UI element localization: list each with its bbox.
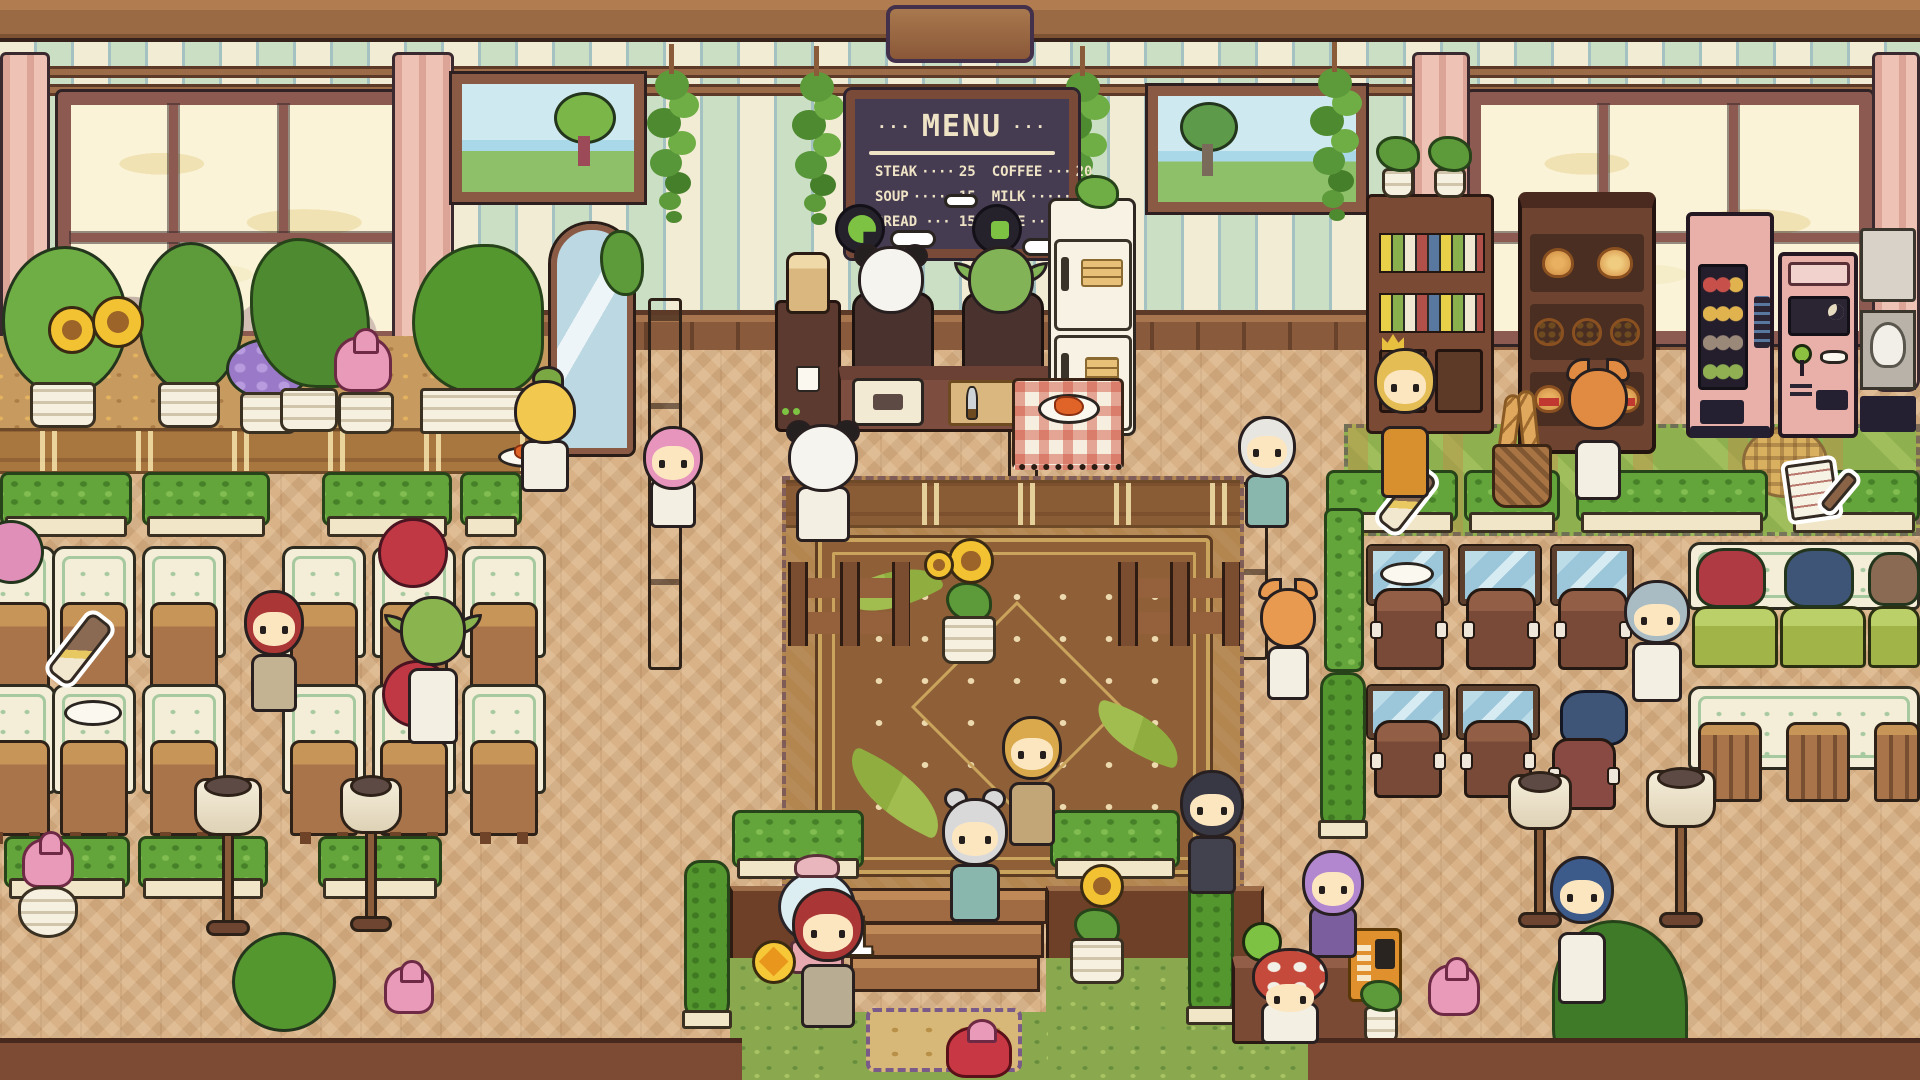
npc-face	[1190, 794, 1234, 826]
tulip-in-pot	[22, 838, 74, 888]
menu-item-dots: ···	[1046, 164, 1071, 180]
sunflower-planter	[1058, 868, 1138, 988]
painting-right	[1148, 86, 1366, 212]
plant-pot	[338, 392, 394, 434]
cookie-shelf	[1530, 304, 1644, 360]
machine-vents	[1790, 384, 1812, 396]
prize-machine-top	[1860, 228, 1916, 302]
lamp-pole	[1534, 826, 1546, 916]
lamp-shade	[340, 778, 402, 834]
bread-icon	[1597, 247, 1633, 279]
pastry-icon	[1534, 385, 1564, 413]
cooking-status-icon	[848, 215, 876, 243]
bread-shelf	[1530, 234, 1644, 292]
cookie-icon	[1572, 318, 1602, 346]
machine-header	[1788, 262, 1850, 286]
soup-bowl	[64, 700, 122, 726]
npc-face	[652, 446, 694, 480]
vending-base	[1690, 426, 1770, 438]
book-row	[1379, 233, 1485, 273]
baguette-basket	[1492, 444, 1552, 508]
lamp-base	[1659, 912, 1703, 928]
hedge-wall	[1324, 508, 1364, 672]
cash-register[interactable]	[852, 378, 924, 426]
menu-item-name: MILK	[992, 189, 1026, 205]
vending-keypad[interactable]	[1754, 296, 1770, 348]
padded-chair	[1558, 588, 1628, 670]
lamp-shade	[194, 778, 262, 836]
npc-head	[788, 424, 858, 492]
npc-head	[400, 596, 466, 666]
pink-tulip	[1428, 964, 1480, 1016]
npc-body	[521, 440, 568, 492]
register-screen	[1375, 939, 1395, 969]
padded-chair	[1466, 588, 1536, 670]
arcade-claw-machine[interactable]	[1778, 252, 1858, 438]
npc-turnip-kid-carrying-plate[interactable]	[514, 380, 576, 492]
padded-chair	[1374, 720, 1442, 798]
sunflower	[1080, 864, 1124, 908]
shelf-plant	[1434, 168, 1466, 198]
entrance-steps	[846, 922, 1044, 958]
pink-lily	[334, 336, 392, 392]
npc-face	[1634, 604, 1680, 636]
hedge	[322, 472, 452, 526]
npc-body	[950, 864, 1000, 922]
hanging-plant	[655, 70, 689, 100]
npc-face	[952, 822, 998, 856]
npc-panda-customer[interactable]	[788, 424, 858, 542]
prize-machine[interactable]	[1860, 228, 1920, 440]
npc-mushroom-kid[interactable]	[1252, 948, 1328, 1044]
wood-fence	[788, 562, 910, 646]
menu-item-name: SOUP	[875, 189, 909, 205]
dining-chair	[0, 740, 50, 836]
npc-face	[1384, 370, 1426, 404]
npc-body	[1009, 782, 1055, 846]
npc-black-hair[interactable]	[1180, 770, 1244, 894]
npc-white-hair-elder[interactable]	[1238, 416, 1296, 528]
sunflower	[92, 296, 144, 348]
vending-slot[interactable]	[1700, 400, 1744, 424]
prize-machine-base	[1860, 396, 1916, 432]
menu-item-name: COFFEE	[992, 164, 1043, 180]
menu-item-price: 25	[959, 164, 976, 180]
sunflower	[948, 538, 994, 584]
npc-face	[1247, 436, 1287, 468]
seated-customer-red-hair[interactable]	[1696, 548, 1766, 608]
npc-face	[1011, 738, 1053, 770]
plush-icon	[1870, 322, 1906, 368]
plant-pot	[280, 388, 338, 432]
hedge	[0, 472, 132, 526]
cabinet-door	[1435, 349, 1483, 413]
window-mullion	[71, 233, 395, 242]
floor-lamp	[1646, 764, 1716, 932]
painting-tree-trunk	[578, 136, 590, 166]
npc-body	[1267, 646, 1310, 700]
npc-crown-girl[interactable]	[1374, 348, 1436, 498]
lamp-pole	[1675, 824, 1687, 916]
menu-title-text: MENU	[922, 109, 1002, 144]
npc-body	[1381, 426, 1428, 498]
table-flowers-red	[378, 518, 448, 588]
menu-divider	[869, 151, 1055, 155]
red-tulip	[946, 1026, 1012, 1078]
plant-pot	[30, 382, 96, 428]
npc-face	[803, 914, 853, 952]
bottle-row	[1703, 271, 1743, 297]
fridge-handle	[1061, 257, 1069, 291]
menu-item-dots: ···	[925, 214, 950, 230]
topiary-column	[684, 860, 730, 1020]
menu-title-decor: ···	[877, 117, 912, 136]
slat-chair	[1786, 722, 1850, 802]
checkered-table	[1012, 378, 1124, 470]
floor-lamp	[340, 772, 402, 934]
game-viewport: ··· MENU ··· STEAK····25 SOUP·····15 BRE…	[0, 0, 1920, 1080]
npc-fox[interactable]	[1568, 368, 1628, 500]
lamp-pole	[365, 830, 377, 920]
knife-icon	[966, 386, 978, 420]
crab-dish-icon	[1054, 396, 1084, 416]
sunflower	[48, 306, 96, 354]
entrance-steps	[850, 956, 1040, 992]
sunflower	[924, 550, 954, 580]
turnip-pot	[18, 886, 78, 938]
npc-body	[1245, 474, 1289, 528]
green-chair	[1780, 606, 1866, 668]
cooking-status-icon	[991, 221, 1009, 239]
npc-blue-hair[interactable]	[1550, 856, 1614, 1004]
npc-body	[1188, 836, 1237, 894]
book-row	[1379, 293, 1485, 333]
lamp-base	[206, 920, 250, 936]
fridge-note	[1081, 259, 1123, 287]
npc-face	[253, 612, 295, 646]
npc-body	[796, 486, 849, 542]
bottle-row	[1703, 358, 1743, 384]
joystick[interactable]	[1792, 344, 1812, 364]
lamp-pole	[222, 832, 234, 924]
lamp-shade	[1646, 770, 1716, 828]
plant-pot	[942, 616, 996, 664]
lamp-base	[350, 916, 392, 932]
bottom-wall-edge	[0, 1038, 742, 1080]
pink-tulip	[384, 966, 434, 1014]
fridge-plant	[1075, 175, 1119, 209]
dining-chair	[470, 740, 538, 836]
green-head	[968, 246, 1034, 314]
menu-title: ··· MENU ···	[867, 109, 1057, 144]
shelf-plant	[1382, 168, 1414, 198]
steam-puff	[944, 194, 978, 208]
npc-red-hair-kid[interactable]	[244, 590, 304, 712]
cookie-icon	[1610, 318, 1640, 346]
bottle-row	[1703, 329, 1743, 355]
npc-pink-hair[interactable]	[643, 426, 703, 528]
leafy-plant	[412, 244, 544, 394]
hanging-plant	[800, 72, 834, 102]
staff-panda-chef[interactable]	[858, 246, 924, 316]
sunflower-planter	[928, 540, 1010, 668]
door-plaque	[886, 5, 1034, 63]
wood-fence	[1118, 562, 1240, 646]
slat-chair	[1874, 722, 1920, 802]
npc-body	[1575, 440, 1621, 500]
menu-item-bread: BREAD···15	[875, 214, 976, 230]
painting-tree-trunk	[1202, 144, 1213, 176]
npc-silver-hair-girl[interactable]	[942, 798, 1008, 922]
menu-item-coffee: COFFEE···20	[992, 164, 1093, 180]
picture-rail	[0, 66, 1920, 78]
npc-green-goblin[interactable]	[400, 596, 466, 744]
coin-slot[interactable]	[1816, 390, 1848, 410]
menu-title-decor: ···	[1012, 117, 1047, 136]
npc-body	[251, 654, 297, 712]
coin-icon[interactable]	[752, 940, 796, 984]
npc-body	[408, 668, 458, 744]
plant-pot	[1070, 938, 1124, 984]
seated-customer-brown-hair[interactable]	[1868, 552, 1920, 606]
hanging-plant	[1318, 68, 1352, 98]
npc-head	[1568, 368, 1628, 430]
tile-runner	[0, 428, 548, 474]
painting-left	[452, 74, 644, 202]
npc-orange-cat[interactable]	[1260, 588, 1316, 700]
panda-head	[858, 246, 924, 314]
hedge	[460, 472, 522, 526]
padded-chair	[1374, 588, 1444, 670]
menu-item-steak: STEAK····25	[875, 164, 976, 180]
npc-head	[1260, 588, 1316, 648]
npc-face	[1266, 984, 1314, 1012]
npc-face	[1560, 880, 1604, 914]
plant-pot	[158, 382, 220, 428]
menu-item-name: STEAK	[875, 164, 917, 180]
bread-icon	[1542, 248, 1574, 278]
vending-machine[interactable]	[1686, 212, 1774, 438]
green-chair	[1692, 606, 1778, 668]
indicator-light	[793, 408, 800, 415]
npc-blonde-coat[interactable]	[1002, 716, 1062, 846]
npc-body	[1558, 932, 1607, 1004]
bottom-wall-edge	[1308, 1038, 1920, 1080]
topiary-column	[1320, 672, 1366, 830]
coffee-urn	[786, 252, 830, 314]
dining-chair	[60, 740, 128, 836]
npc-head	[514, 380, 576, 444]
bottle-row	[1703, 300, 1743, 326]
seated-customer-navy-hair[interactable]	[1784, 548, 1854, 608]
gumball-cap	[794, 854, 840, 878]
green-chair	[1868, 606, 1920, 668]
sample-dish	[1820, 350, 1848, 364]
hedge	[142, 472, 270, 526]
npc-purple-hair-receptionist[interactable]	[1302, 850, 1364, 958]
npc-body	[1632, 642, 1682, 702]
moon-icon	[1828, 304, 1844, 320]
round-bush	[232, 932, 336, 1032]
lamp-shade	[1508, 774, 1572, 830]
floor-lamp	[194, 772, 262, 938]
cookie-icon	[1534, 318, 1564, 346]
vending-window	[1698, 264, 1748, 390]
staff-green-chef[interactable]	[968, 246, 1034, 316]
npc-body	[801, 964, 856, 1028]
npc-gray-cap[interactable]	[1624, 580, 1690, 702]
npc-face	[1312, 872, 1354, 906]
dish-plate	[1380, 562, 1434, 586]
indicator-light	[782, 408, 789, 415]
hedge	[1050, 810, 1180, 868]
menu-item-dots: ····	[921, 164, 955, 180]
coffee-cup	[796, 366, 820, 392]
